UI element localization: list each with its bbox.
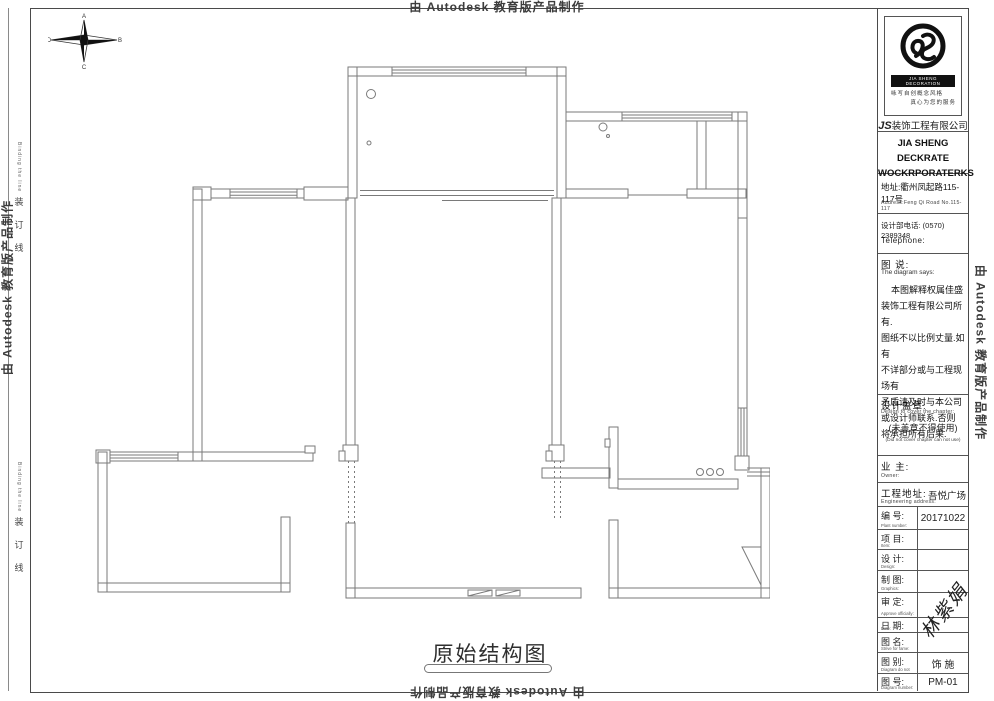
row-label-en: Diagram number: [881,685,913,690]
logo-section: JIA SHENG DECORATION 咏写自创概念风格 真心为您的服务 JS… [878,8,968,132]
stamp-label-en: Design to cover the chapter: [881,409,954,415]
right-outer-wall [735,218,749,470]
owner-label-cn: 业 主: [881,459,909,473]
company-logo-prefix: JS [878,120,891,132]
fixture-circle [367,90,376,99]
binding-label-cn: 装订线 [13,197,26,266]
compass-label-left: D [48,38,52,44]
logo-motto-2: 真心为您的服务 [885,97,961,106]
sink-circle [697,469,704,476]
binding-label-cn: 装订线 [13,517,26,586]
stamp-warning-cn: (未盖章不得使用) [878,421,968,434]
autodesk-banner-right: 由 Autodesk 教育版产品制作 [973,223,990,483]
row-value: PM-01 [917,674,968,691]
field-row-item: 项 目: Item: [878,530,968,550]
lower-left-room-walls [96,450,290,592]
balcony-top-walls [348,67,566,201]
site-section: 工程地址: Engineering address: 吾悦广场 [878,483,968,507]
row-value: 20171022 [917,507,968,529]
left-bedroom-walls [193,189,315,461]
drawing-title-underline [424,664,552,673]
logo-box: JIA SHENG DECORATION 咏写自创概念风格 真心为您的服务 [884,16,962,116]
fixture-circle [367,141,371,145]
logo-brand-en: JIA SHENG DECORATION [891,75,955,87]
company-en-section: JIA SHENG DECKRATE WOCKRPORATERKS [878,132,968,174]
stamp-warning-en: (Did not cover chapter can not use) [878,438,968,443]
row-label-cn: 制 图: [881,573,904,586]
main-top-wall [193,187,746,200]
phone-section: 设计部电话: (0570) 2389348 Telephone: [878,214,968,254]
row-label-en: Graphics: [881,586,899,591]
field-row-sheet-number: 图 号: Diagram number: PM-01 [878,674,968,691]
entry-bottom-wall [346,588,581,598]
fixture-circle [607,135,610,138]
autodesk-banner-bottom: 由 Autodesk 教育版产品制作 [367,684,627,701]
row-label-en: Date: [881,626,891,631]
site-label-cn: 工程地址: [881,486,927,500]
company-name-cn: JS装饰工程有限公司 [878,118,968,132]
compass-label-right: B [118,38,122,44]
row-label-en: Diagram do not [881,667,910,672]
field-row-number: 编 号: Plant number: 20171022 [878,507,968,530]
compass-label-top: A [82,14,86,20]
autodesk-banner-top: 由 Autodesk 教育版产品制作 [367,0,627,15]
fixture-circle [599,123,607,131]
row-label-en: Item: [881,543,890,548]
notes-line: 不详部分或与工程现场有 [881,362,966,394]
owner-section: 业 主: Owner: [878,456,968,483]
company-en-line1: JIA SHENG DECKRATE [878,136,968,166]
stamp-section: 设计盖章: Design to cover the chapter: (未盖章不… [878,395,968,456]
row-label-cn: 编 号: [881,509,904,522]
cad-sheet: { "edge": { "autodesk_text": "由 Autodesk… [0,0,994,700]
notes-line: 本图解释权属佳盛 [881,282,966,298]
company-logo-icon [896,20,950,72]
bottom-right-room-walls [609,468,770,598]
notes-line: 装饰工程有限公司所有. [881,298,966,330]
notes-line: 图纸不以比例丈量.如有 [881,330,966,362]
row-value [917,530,968,549]
binding-label-top: Binding the line装订线 [10,142,28,292]
address-en: Address:Feng Qi Road No.115-117 [881,200,968,212]
company-name-cn-text: 装饰工程有限公司 [892,121,968,132]
row-label-en: Strive for fame: [881,646,909,651]
floor-plan [90,55,770,615]
flue-triangle [742,547,761,585]
address-section: 地址:衢州凤起路115-117号 Address:Feng Qi Road No… [878,174,968,214]
logo-motto-1: 咏写自创概念风格 [885,88,961,97]
sink-circle [717,469,724,476]
balcony-right-walls [566,112,747,218]
binding-label-en: Binding the line [16,142,22,192]
phone-en: Telephone: [881,236,925,245]
owner-label-en: Owner: [881,473,900,479]
site-value: 吾悦广场 [928,488,966,502]
central-wall-left [339,198,358,598]
notes-label-en: The diagram says: [881,269,934,276]
binding-label-bottom: Binding the line装订线 [10,462,28,612]
sink-circle [707,469,714,476]
binding-label-en: Binding the line [16,462,22,512]
notes-section: 图 说: The diagram says: 本图解释权属佳盛 装饰工程有限公司… [878,254,968,395]
central-wall-right [546,198,564,520]
row-label-en: Plant number: [881,523,907,528]
row-label-en: Design: [881,564,895,569]
compass-label-bottom: C [82,65,87,70]
